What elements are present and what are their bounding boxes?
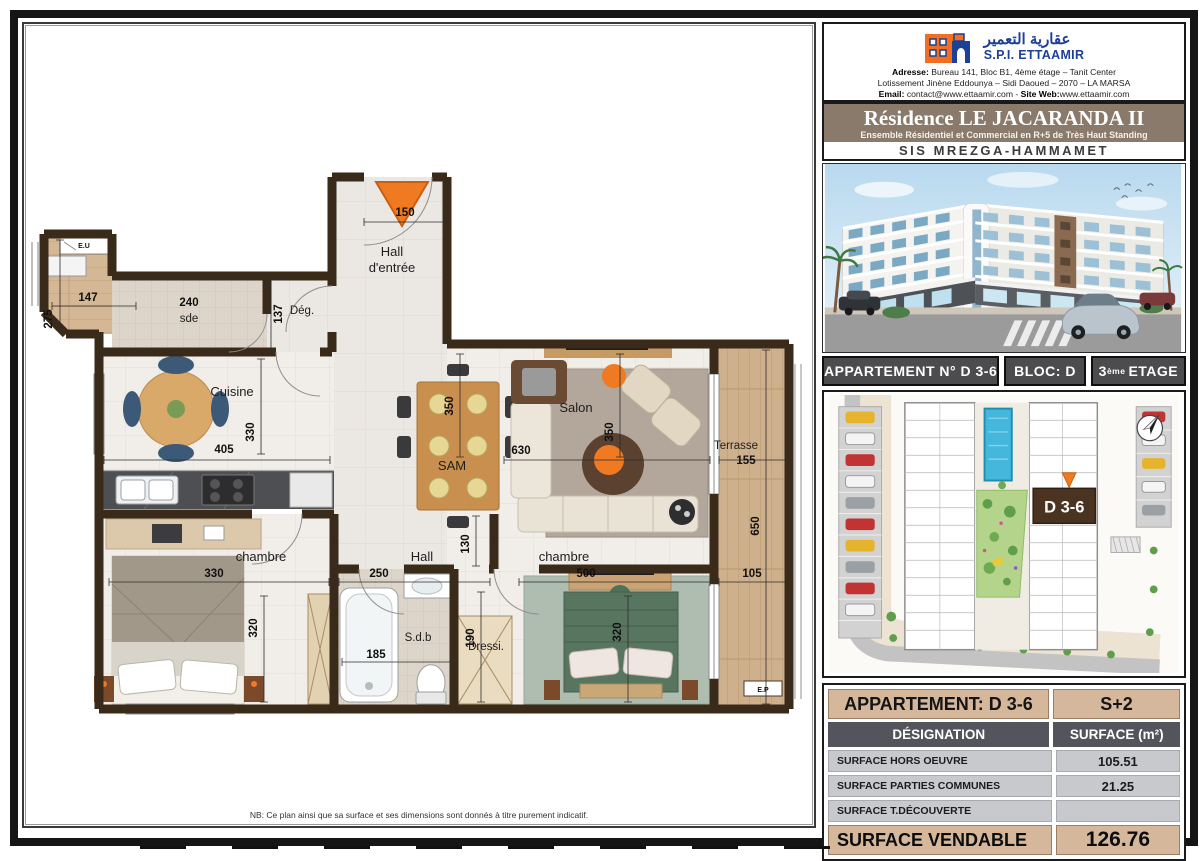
apartment-number-badge: APPARTEMENT N° D 3-6 <box>822 356 999 386</box>
svg-text:275: 275 <box>43 309 55 329</box>
building-render <box>822 163 1186 353</box>
svg-text:350: 350 <box>604 422 616 441</box>
company-logo-icon <box>924 29 976 65</box>
project-location: SIS MREZGA-HAMMAMET <box>824 142 1184 159</box>
room-chambre1: chambre <box>236 549 287 564</box>
svg-text:105: 105 <box>742 568 762 580</box>
toilet <box>416 665 446 704</box>
table-row: SURFACE HORS OEUVRE 105.51 <box>828 750 1180 772</box>
project-subtitle: Ensemble Résidentiel et Commercial en R+… <box>824 130 1184 140</box>
company-name-arabic: عقارية التعمير <box>984 32 1085 48</box>
marker-ep: E.P <box>757 687 769 694</box>
svg-text:320: 320 <box>612 622 624 641</box>
apartment-identity-bar: APPARTEMENT N° D 3-6 BLOC: D 3èmeETAGE <box>822 356 1186 386</box>
svg-text:d'entrée: d'entrée <box>369 260 416 275</box>
dim-entry: 150 <box>395 207 414 219</box>
svg-text:650: 650 <box>750 516 762 535</box>
floor-plan-panel: Hall d'entrée 150 E.U 147 275 240 sde 13… <box>22 22 816 828</box>
site-plan-image: D 3-6 <box>827 395 1181 673</box>
project-title: Résidence LE JACARANDA II <box>824 107 1184 129</box>
svg-text:330: 330 <box>204 568 223 580</box>
room-entry-hall: Hall <box>381 244 404 259</box>
company-address-line2: Lotissement Jinène Eddounya – Sidi Daoue… <box>828 78 1180 89</box>
row-label: SURFACE T.DÉCOUVERTE <box>828 800 1052 822</box>
room-terrasse: Terrasse <box>714 440 758 452</box>
row-label: SURFACE HORS OEUVRE <box>828 750 1052 772</box>
row-value: 105.51 <box>1056 750 1180 772</box>
plan-disclaimer: NB: Ce plan ainsi que sa surface et ses … <box>24 810 814 820</box>
room-chambre2: chambre <box>539 549 590 564</box>
room-deg: Dég. <box>290 305 314 317</box>
room-sdb: S.d.b <box>405 632 432 644</box>
svg-text:250: 250 <box>369 568 388 580</box>
total-label: SURFACE VENDABLE <box>828 825 1052 855</box>
svg-text:147: 147 <box>78 292 97 304</box>
svg-text:240: 240 <box>179 297 198 309</box>
apartment-type: S+2 <box>1053 689 1180 719</box>
garden <box>977 482 1028 598</box>
svg-text:137: 137 <box>273 304 285 323</box>
plan-sheet: Hall d'entrée 150 E.U 147 275 240 sde 13… <box>10 10 1198 846</box>
col-surface: SURFACE (m²) <box>1053 722 1180 747</box>
site-plan: D 3-6 <box>822 390 1186 678</box>
svg-text:500: 500 <box>576 568 595 580</box>
company-name: S.P.I. ETTAAMIR <box>984 48 1085 62</box>
room-sam: SAM <box>438 458 466 473</box>
bloc-badge: BLOC: D <box>1004 356 1086 386</box>
row-label: SURFACE PARTIES COMMUNES <box>828 775 1052 797</box>
unit-label: D 3-6 <box>1044 498 1084 517</box>
floor-plan-drawing: Hall d'entrée 150 E.U 147 275 240 sde 13… <box>24 164 810 744</box>
floor-badge: 3èmeETAGE <box>1091 356 1186 386</box>
svg-text:350: 350 <box>444 396 456 415</box>
surface-table: APPARTEMENT: D 3-6 S+2 DÉSIGNATION SURFA… <box>822 683 1186 861</box>
row-value: 21.25 <box>1056 775 1180 797</box>
row-value <box>1056 800 1180 822</box>
room-sde: sde <box>180 313 199 325</box>
project-banner: Résidence LE JACARANDA II Ensemble Résid… <box>822 102 1186 161</box>
svg-text:155: 155 <box>736 455 756 467</box>
room-hall: Hall <box>411 549 434 564</box>
table-title: APPARTEMENT: D 3-6 <box>828 689 1049 719</box>
table-row: SURFACE T.DÉCOUVERTE <box>828 800 1180 822</box>
room-cuisine: Cuisine <box>210 384 253 399</box>
total-value: 126.76 <box>1056 825 1180 855</box>
svg-text:630: 630 <box>511 445 530 457</box>
svg-text:185: 185 <box>366 649 386 661</box>
svg-text:405: 405 <box>214 444 234 456</box>
table-row: SURFACE PARTIES COMMUNES 21.25 <box>828 775 1180 797</box>
company-header: عقارية التعمير S.P.I. ETTAAMIR Adresse: … <box>822 22 1186 102</box>
room-salon: Salon <box>559 400 592 415</box>
svg-text:320: 320 <box>248 618 260 637</box>
svg-text:330: 330 <box>245 422 257 441</box>
company-address-line1: Adresse: Bureau 141, Bloc B1, 4ème étage… <box>828 67 1180 78</box>
right-column: عقارية التعمير S.P.I. ETTAAMIR Adresse: … <box>822 22 1186 861</box>
company-contact-line: Email: contact@www.ettaamir.com - Site W… <box>828 89 1180 100</box>
table-total-row: SURFACE VENDABLE 126.76 <box>828 825 1180 855</box>
room-dressing: Dressi. <box>468 641 504 653</box>
col-designation: DÉSIGNATION <box>828 722 1049 747</box>
svg-text:130: 130 <box>460 534 472 553</box>
marker-eu: E.U <box>78 243 90 250</box>
building-render-image <box>823 164 1183 352</box>
